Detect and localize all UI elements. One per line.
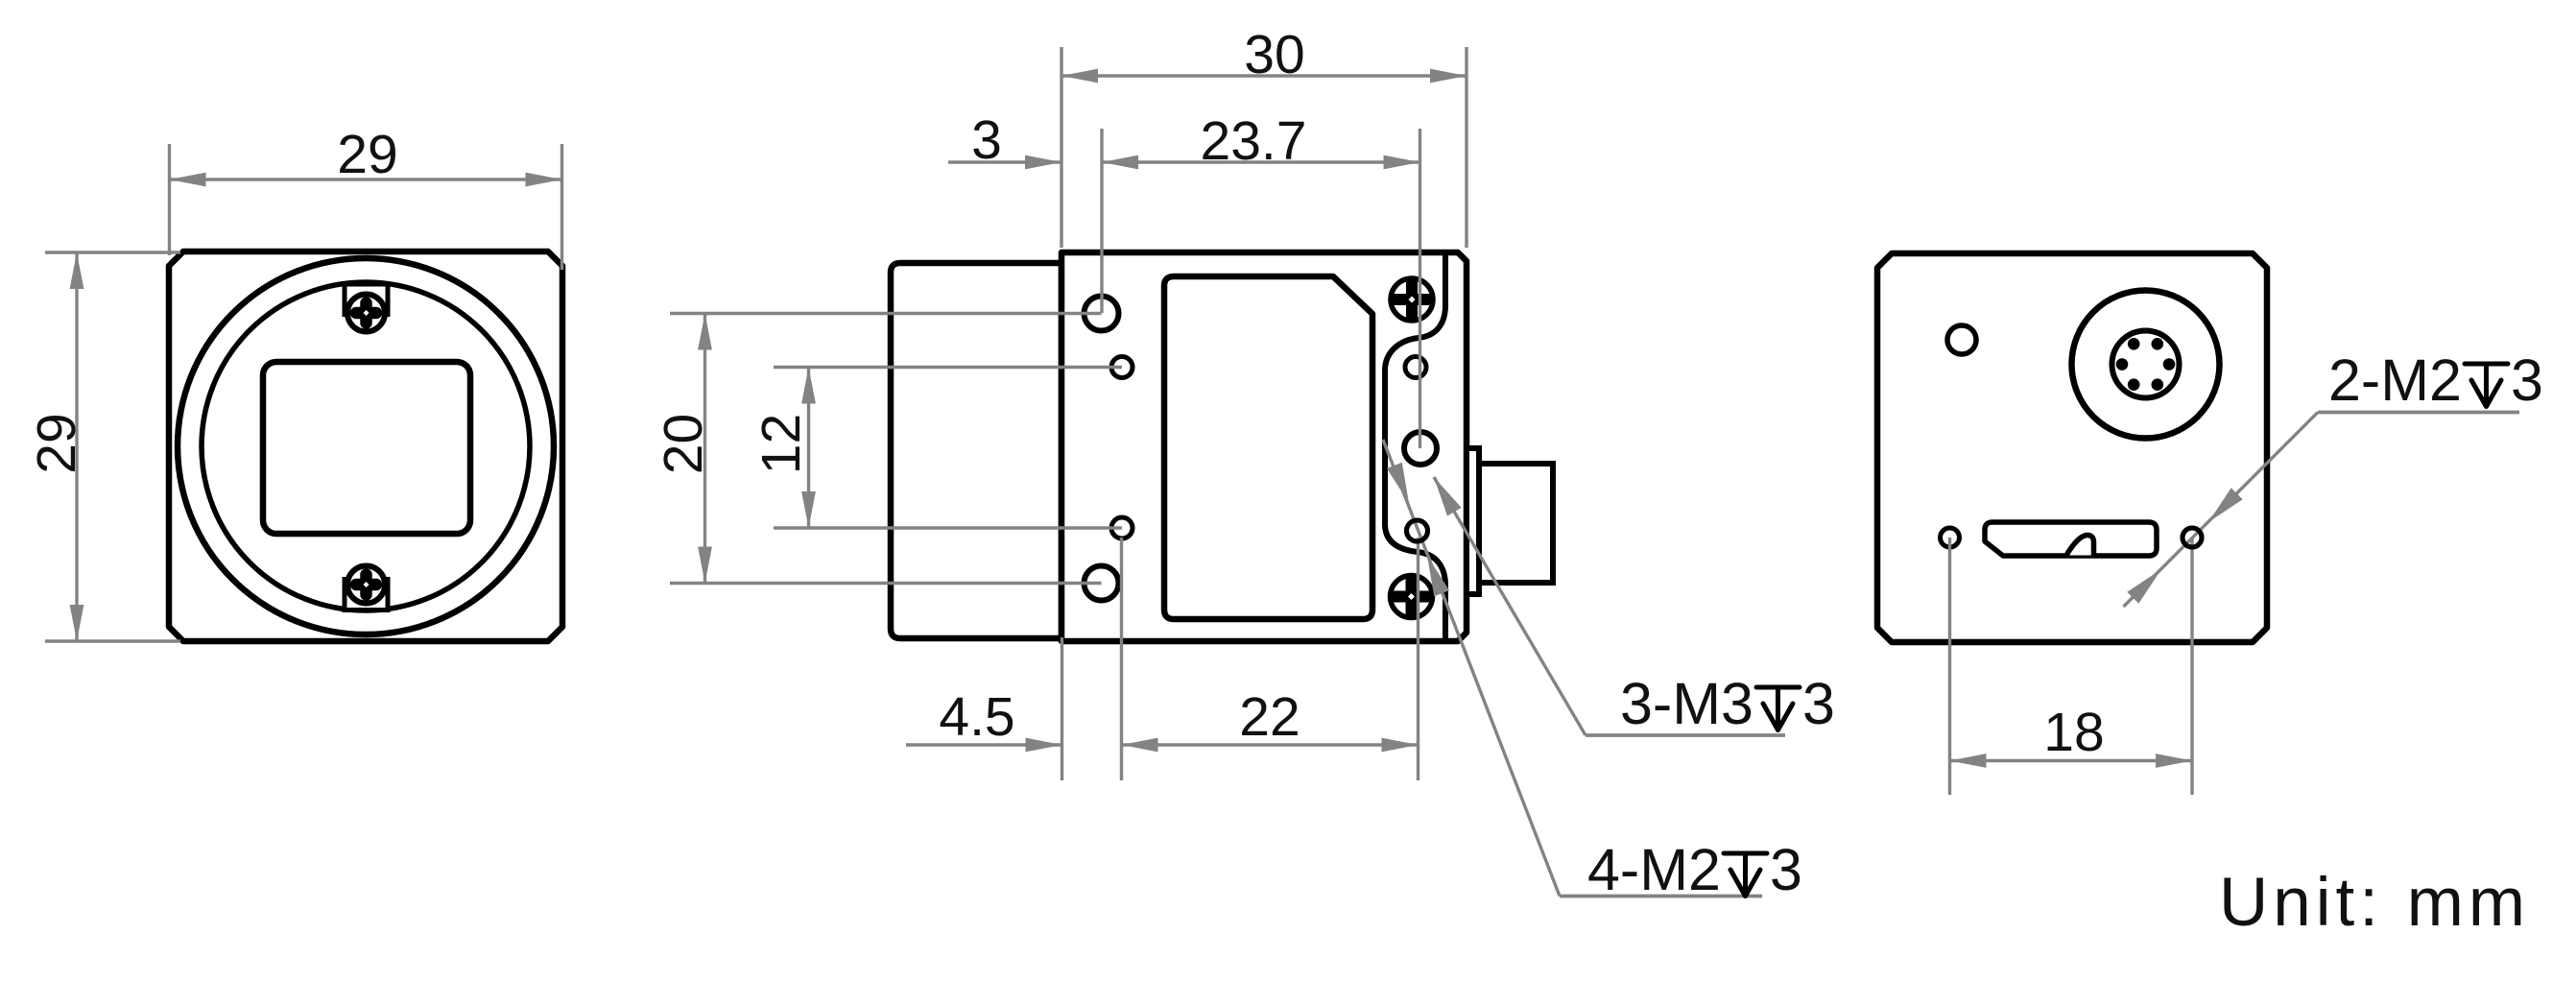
svg-text:22: 22 — [1239, 686, 1300, 748]
svg-text:4-M2: 4-M2 — [1587, 837, 1721, 902]
svg-text:4.5: 4.5 — [939, 686, 1014, 748]
svg-text:Unit: mm: Unit: mm — [2219, 865, 2530, 941]
svg-text:3: 3 — [1770, 837, 1802, 902]
svg-text:18: 18 — [2043, 702, 2104, 763]
svg-text:3: 3 — [971, 109, 1002, 171]
svg-text:3: 3 — [2511, 347, 2543, 413]
svg-text:30: 30 — [1244, 24, 1304, 85]
svg-text:2-M2: 2-M2 — [2328, 347, 2462, 413]
svg-text:3-M3: 3-M3 — [1620, 671, 1753, 736]
svg-text:23.7: 23.7 — [1201, 110, 1307, 172]
svg-text:20: 20 — [653, 414, 714, 474]
svg-text:12: 12 — [751, 414, 812, 474]
svg-text:29: 29 — [337, 124, 397, 185]
svg-text:29: 29 — [26, 413, 87, 473]
svg-text:3: 3 — [1802, 671, 1835, 736]
